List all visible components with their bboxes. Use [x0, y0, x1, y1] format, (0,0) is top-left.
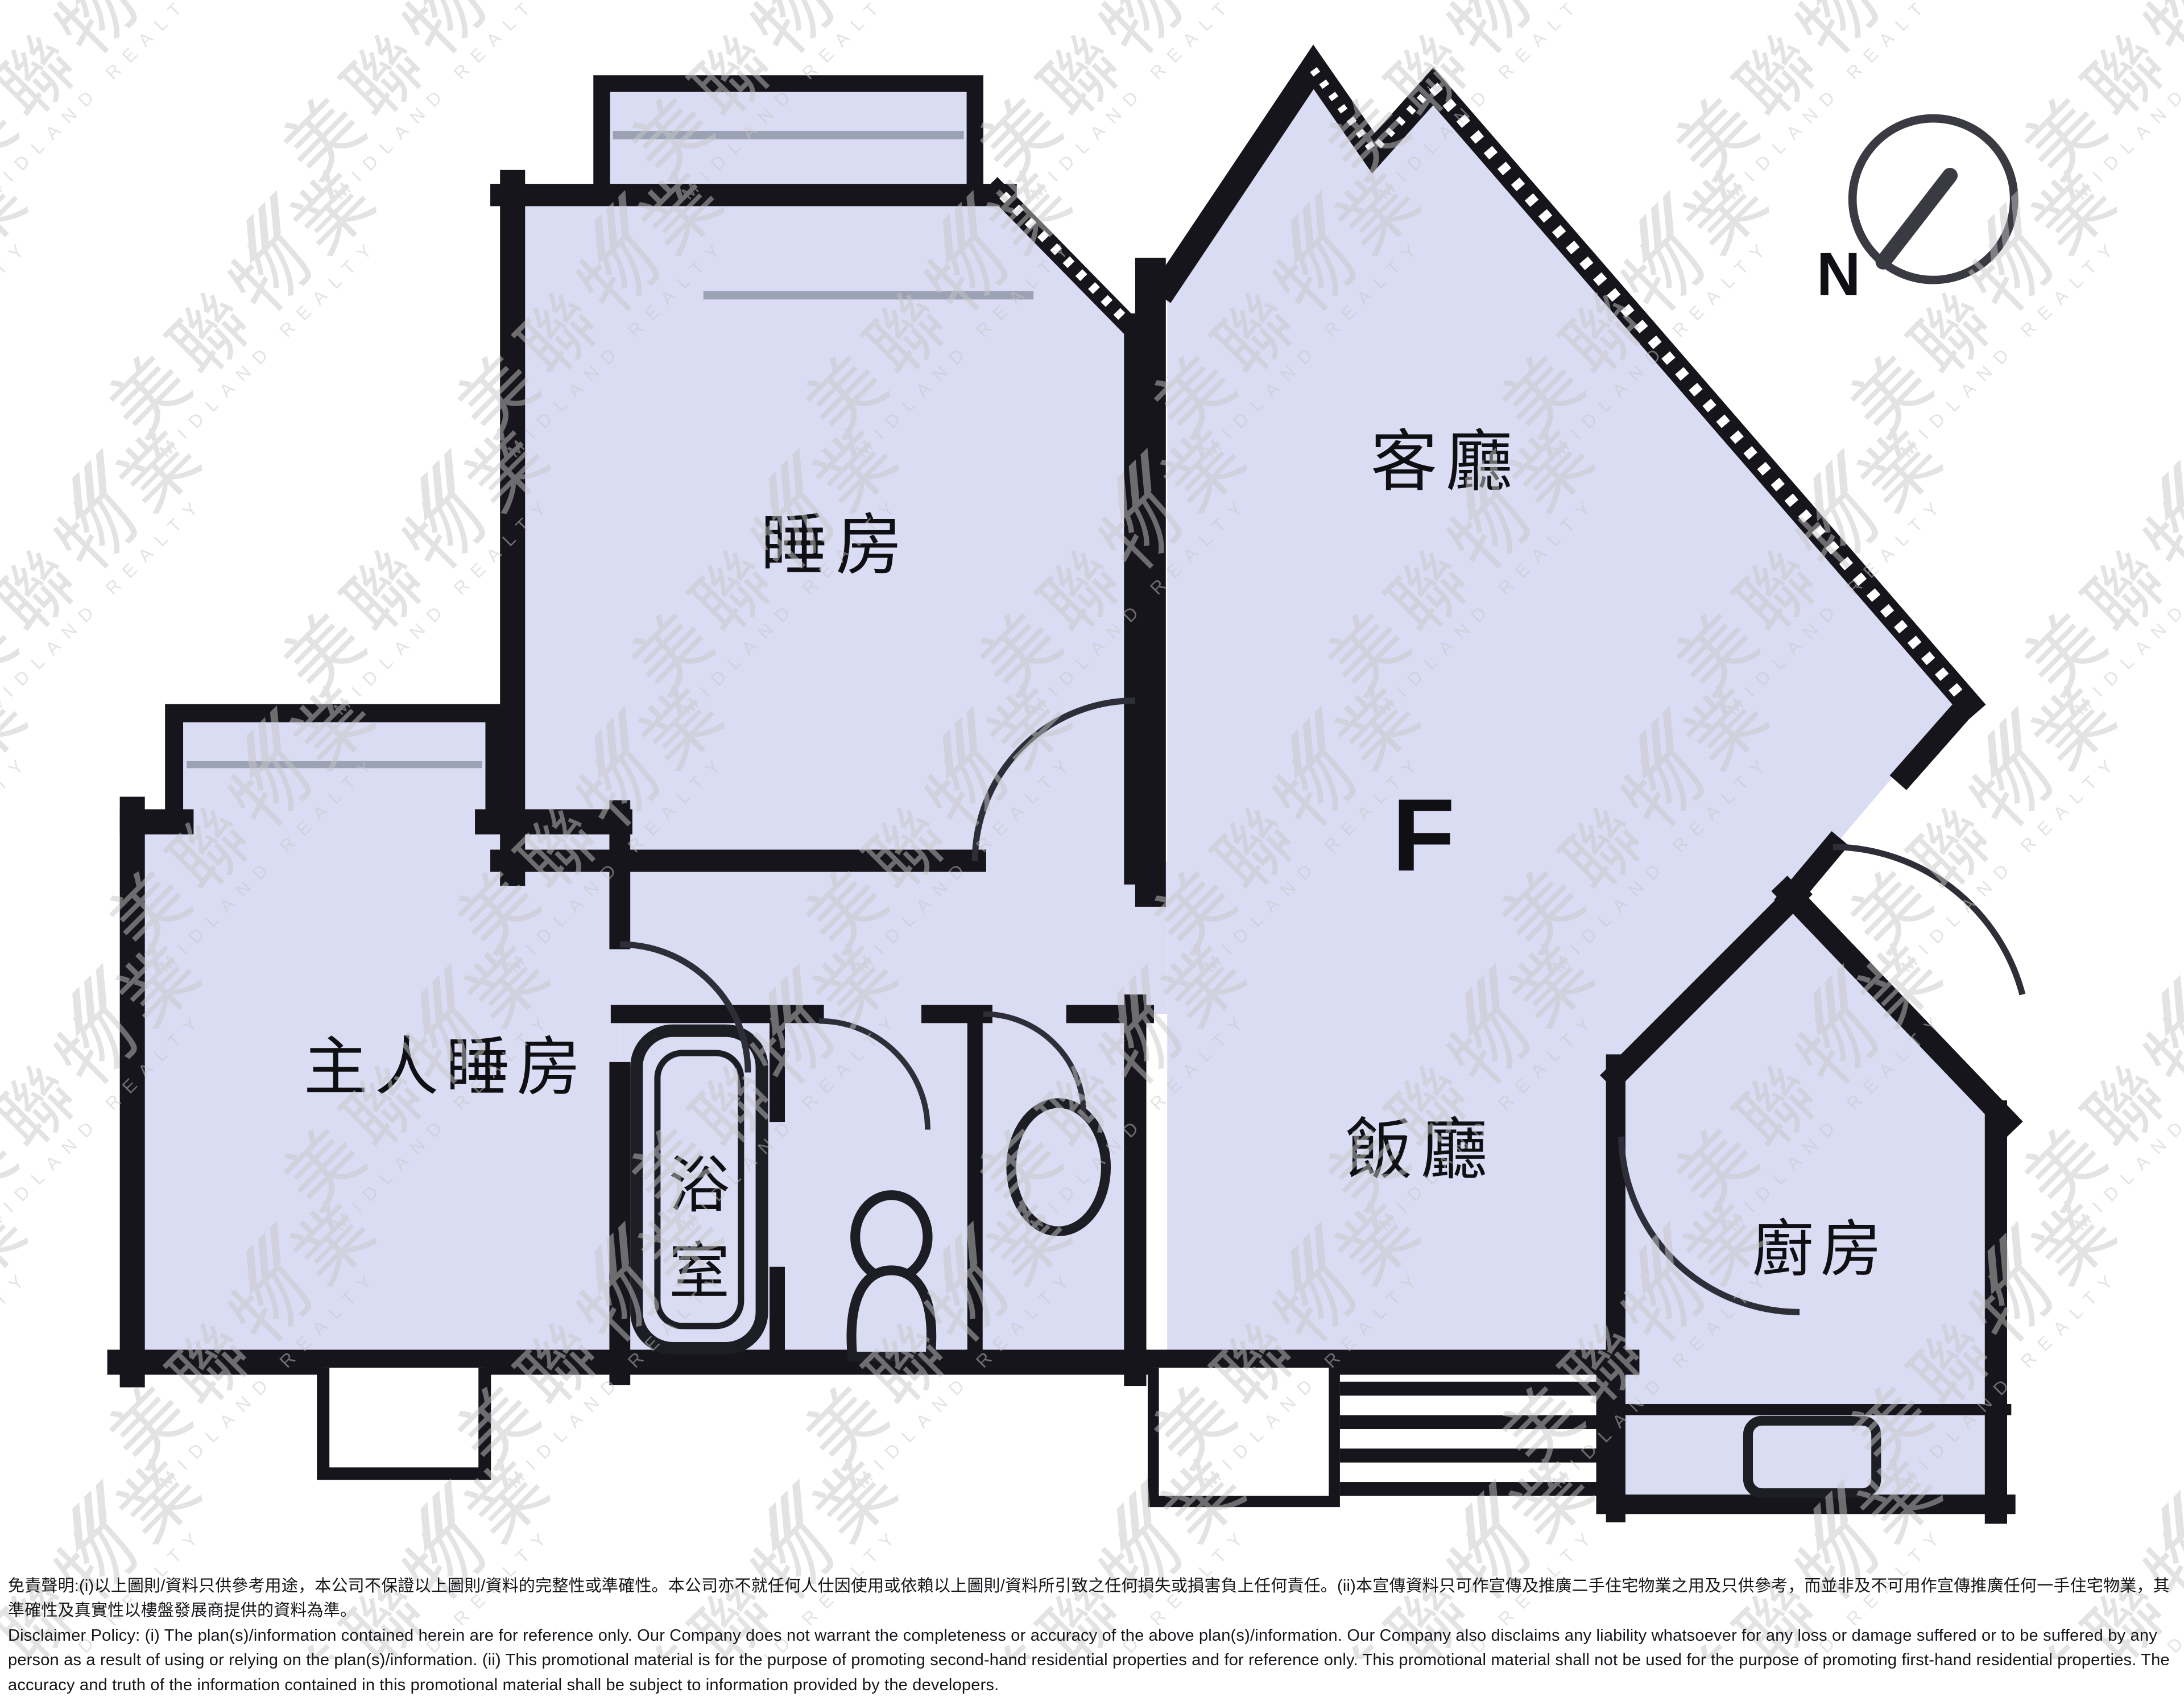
grille-end-wall	[1596, 1362, 1624, 1512]
label-master-bedroom: 主人睡房	[304, 1031, 588, 1103]
watermark-instance	[1413, 0, 1803, 23]
label-living-room: 客廳	[1371, 424, 1521, 499]
watermark-instance	[0, 0, 62, 23]
utility-opening-box	[1153, 1368, 1334, 1501]
watermark-instance	[2110, 664, 2184, 1054]
compass: N	[1817, 118, 2014, 308]
disclaimer-chinese: 免責聲明:(i)以上圖則/資料只供參考用途，本公司不保證以上圖則/資料的完整性或…	[8, 1574, 2176, 1624]
disclaimer-english: Disclaimer Policy: (i) The plan(s)/infor…	[8, 1624, 2176, 1698]
watermark-instance	[0, 0, 236, 280]
compass-north-label: N	[1817, 240, 1861, 308]
watermark-instance	[0, 148, 62, 538]
master-bedroom-ac-platform	[323, 1368, 485, 1473]
label-bathroom-char1: 浴	[669, 1150, 730, 1219]
watermark-instance	[20, 148, 410, 538]
watermark-instance	[2110, 0, 2184, 23]
label-kitchen: 廚房	[1752, 1215, 1889, 1283]
room-fills	[133, 74, 2006, 1504]
toilet-bowl	[851, 1270, 932, 1357]
disclaimer-block: 免責聲明:(i)以上圖則/資料只供參考用途，本公司不保證以上圖則/資料的完整性或…	[8, 1574, 2176, 1698]
grille-bar	[1340, 1415, 1602, 1429]
label-dining-room: 飯廳	[1346, 1113, 1496, 1187]
watermark-instance	[20, 0, 410, 23]
watermark-instance	[2110, 1179, 2184, 1569]
watermark-instance	[0, 664, 62, 1054]
floor-plan-page: 美聯物業 MIDLAND REALTY	[0, 0, 2184, 1701]
watermark-instance	[717, 0, 1107, 23]
watermark-instance	[1761, 0, 2151, 23]
grille-bar	[1340, 1482, 1602, 1496]
grille-bar	[1340, 1448, 1602, 1462]
watermark-instance	[2110, 148, 2184, 538]
label-unit: F	[1392, 778, 1455, 893]
watermark-instance	[1065, 0, 1455, 23]
watermark-instance	[1935, 406, 2184, 796]
watermark-instance	[0, 1179, 62, 1569]
watermark-instance	[369, 0, 758, 23]
floor-plan-drawing: 美聯物業 MIDLAND REALTY	[0, 0, 2184, 1659]
label-bathroom-char2: 室	[669, 1237, 730, 1306]
grille-bar	[1340, 1382, 1602, 1396]
balcony-grille	[1340, 1362, 1624, 1512]
label-bedroom: 睡房	[760, 508, 911, 583]
